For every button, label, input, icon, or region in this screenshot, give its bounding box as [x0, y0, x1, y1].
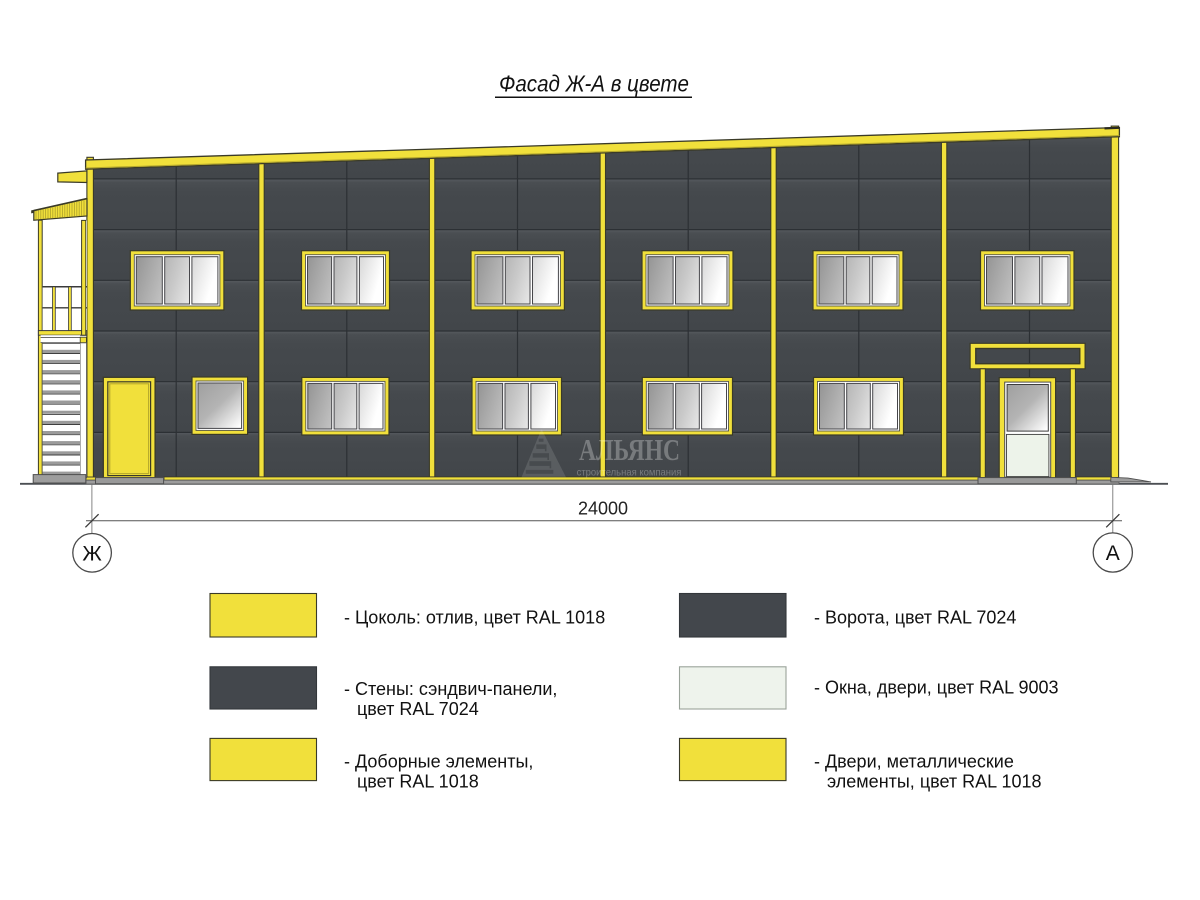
svg-text:- Доборные элементы,: - Доборные элементы, [344, 752, 533, 772]
svg-text:строительная компания: строительная компания [577, 467, 682, 479]
svg-text:элементы, цвет RAL 1018: элементы, цвет RAL 1018 [827, 771, 1042, 791]
svg-text:цвет RAL 7024: цвет RAL 7024 [357, 699, 479, 719]
svg-text:- Ворота, цвет RAL 7024: - Ворота, цвет RAL 7024 [814, 607, 1016, 627]
svg-text:А: А [1106, 542, 1120, 565]
svg-text:АЛЬЯНС: АЛЬЯНС [579, 432, 680, 467]
svg-text:- Стены: сэндвич-панели,: - Стены: сэндвич-панели, [344, 679, 557, 699]
svg-text:Фасад Ж-А в цвете: Фасад Ж-А в цвете [499, 71, 689, 97]
svg-text:- Цоколь: отлив, цвет RAL 1018: - Цоколь: отлив, цвет RAL 1018 [344, 607, 605, 627]
svg-text:цвет RAL 1018: цвет RAL 1018 [357, 771, 479, 791]
svg-text:24000: 24000 [578, 499, 628, 519]
svg-text:Ж: Ж [82, 542, 102, 565]
svg-text:- Окна, двери, цвет RAL 9003: - Окна, двери, цвет RAL 9003 [814, 678, 1059, 698]
svg-text:- Двери, металлические: - Двери, металлические [814, 752, 1014, 772]
